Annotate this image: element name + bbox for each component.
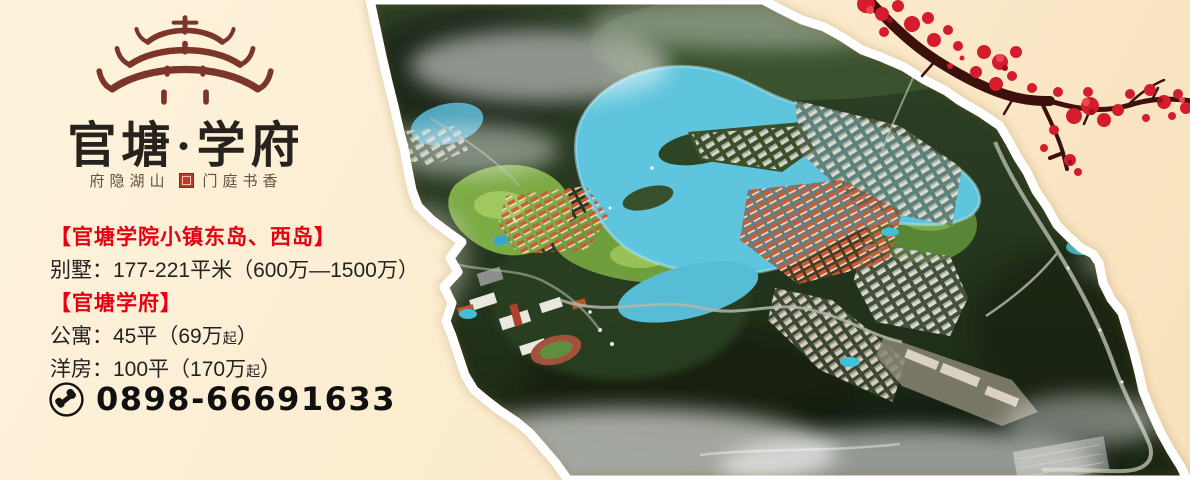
phone-row[interactable]: 0898-66691633 xyxy=(48,380,396,418)
listing-header-xuefu: 【官塘学府】 xyxy=(50,288,450,321)
phone-icon xyxy=(48,381,85,418)
subtitle-left: 府隐湖山 xyxy=(89,170,169,191)
subtitle-right: 门庭书香 xyxy=(203,170,283,191)
seal-icon xyxy=(179,173,194,188)
real-estate-ad-banner[interactable]: 官塘·学府 府隐湖山 门庭书香 【官塘学院小镇东岛、西岛】 别墅：177-221… xyxy=(0,0,1190,480)
brand-title: 官塘·学府 xyxy=(0,106,372,177)
listing-apartment: 公寓：45平（69万起） xyxy=(50,321,450,354)
left-info-panel: 官塘·学府 府隐湖山 门庭书香 【官塘学院小镇东岛、西岛】 别墅：177-221… xyxy=(0,0,440,480)
brand-subtitle: 府隐湖山 门庭书香 xyxy=(0,170,372,191)
listing-info-block: 【官塘学院小镇东岛、西岛】 别墅：177-221平米（600万—1500万） 【… xyxy=(50,222,450,387)
listing-villa: 别墅：177-221平米（600万—1500万） xyxy=(50,255,450,288)
listing-header-island: 【官塘学院小镇东岛、西岛】 xyxy=(50,222,450,255)
pavilion-roofs-logo xyxy=(96,12,274,106)
phone-number: 0898-66691633 xyxy=(96,380,396,418)
